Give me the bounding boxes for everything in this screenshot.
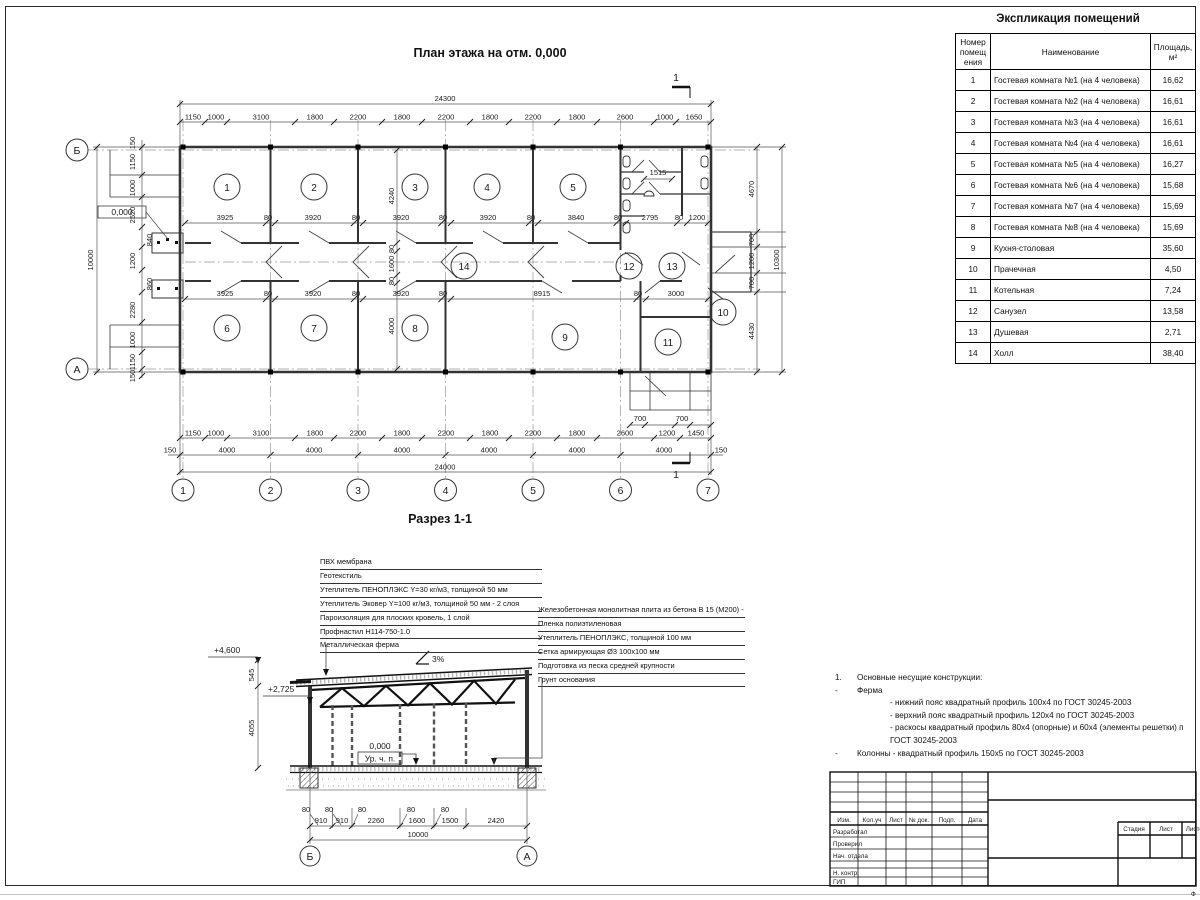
room-number: 5 [570, 183, 576, 194]
level-label: 0,000 [369, 741, 391, 751]
floor-layer-callouts: Железобетонная монолитная плита из бетон… [538, 604, 745, 687]
dim-label: 3920 [305, 213, 322, 222]
room-number: 13 [666, 262, 678, 273]
dim-label: 3920 [393, 289, 410, 298]
room-number: 9 [562, 333, 568, 344]
level-label: +4,600 [214, 645, 241, 655]
note-text: - нижний пояс квадратный профиль 100х4 п… [890, 697, 1131, 710]
dim-label: 80 [527, 213, 535, 222]
room-name: Гостевая комната №3 (на 4 человека) [991, 112, 1151, 133]
table-row: 14Холл38,40 [956, 343, 1196, 364]
dim-label: 4055 [247, 720, 256, 737]
table-row: 11Котельная7,24 [956, 280, 1196, 301]
table-row: 7Гостевая комната №7 (на 4 человека)15,6… [956, 196, 1196, 217]
grid-label: 1 [180, 485, 186, 497]
room-name: Гостевая комната №4 (на 4 человека) [991, 133, 1151, 154]
dim-label: 4430 [747, 323, 756, 340]
stamp-row-label: Проверил [833, 841, 862, 848]
dim-label: 1200 [689, 213, 706, 222]
callout-item: Профнастил Н114-750-1.0 [320, 626, 542, 640]
dim-label: 1000 [128, 180, 137, 197]
room-name: Прачечная [991, 259, 1151, 280]
room-bubbles [214, 174, 736, 355]
dim-label: 1600 [409, 816, 426, 825]
dim-label: 24300 [435, 94, 456, 103]
stamp-col-header: Лист [889, 817, 903, 824]
callout-item: Геотекстиль [320, 570, 542, 584]
grid-label: 4 [443, 485, 449, 497]
room-area: 35,60 [1151, 238, 1196, 259]
callout-item: Утеплитель Эковер Y=100 кг/м3, толщиной … [320, 598, 542, 612]
room-num: 3 [956, 112, 991, 133]
note-text: - верхний пояс квадратный профиль 120х4 … [890, 710, 1134, 723]
room-schedule: Номер помещ ения Наименование Площадь, м… [955, 33, 1196, 364]
room-num: 9 [956, 238, 991, 259]
dim-label: 840 [145, 234, 154, 247]
dim-label: 80 [441, 805, 449, 814]
dim-label: 8915 [534, 289, 551, 298]
dim-label: 1000 [208, 113, 225, 122]
level-label: +2,725 [268, 684, 295, 694]
dim-label: 4000 [387, 318, 396, 335]
dim-label: 700 [676, 414, 689, 423]
dim-label: 2600 [617, 113, 634, 122]
stamp-row-label: ГИП [833, 879, 846, 886]
room-name: Гостевая комната №2 (на 4 человека) [991, 91, 1151, 112]
dim-label: 4000 [219, 446, 236, 455]
table-row: 4Гостевая комната №4 (на 4 человека)16,6… [956, 133, 1196, 154]
dim-label: 700 [747, 277, 756, 290]
dim-label: 4000 [481, 446, 498, 455]
dim-label: 150 [164, 446, 177, 455]
room-name: Гостевая комната №7 (на 4 человека) [991, 196, 1151, 217]
room-area: 38,40 [1151, 343, 1196, 364]
dim-label: 700 [634, 414, 647, 423]
schedule-title: Экспликация помещений [940, 13, 1196, 25]
room-number: 6 [224, 324, 230, 335]
grid-label: А [73, 364, 80, 376]
callout-item: Железобетонная монолитная плита из бетон… [538, 604, 745, 618]
dim-label: 10300 [772, 250, 781, 271]
room-area: 15,68 [1151, 175, 1196, 196]
room-name: Душевая [991, 322, 1151, 343]
dim-label: 150 [128, 370, 137, 383]
room-schedule-table: Номер помещ ения Наименование Площадь, м… [955, 33, 1196, 364]
dim-label: 3000 [668, 289, 685, 298]
room-number: 14 [458, 262, 470, 273]
grid-label: 6 [618, 485, 624, 497]
dim-label: 80 [634, 289, 642, 298]
room-name: Гостевая комната №1 (на 4 человека) [991, 70, 1151, 91]
dim-label: 545 [247, 669, 256, 682]
stamp-col-header: Изм. [837, 817, 851, 824]
dim-label: 3925 [217, 289, 234, 298]
dim-label: 4000 [569, 446, 586, 455]
room-name: Кухня-столовая [991, 238, 1151, 259]
dim-label: 80 [614, 213, 622, 222]
dim-label: 2200 [438, 429, 455, 438]
roof-truss [310, 678, 525, 707]
dim-label: 80 [302, 805, 310, 814]
dim-label: 2200 [438, 113, 455, 122]
room-name: Санузел [991, 301, 1151, 322]
dim-label: 1800 [569, 429, 586, 438]
stamp-row-label: Н. контр. [833, 870, 859, 877]
col-header-number: Номер помещ ения [956, 34, 991, 70]
dim-label: 1800 [307, 113, 324, 122]
stamp-stage-header: Листов [1186, 826, 1200, 833]
dim-label: 80 [387, 245, 396, 253]
room-name: Гостевая комната №5 (на 4 человека) [991, 154, 1151, 175]
callout-item: Сетка армирующая Ø3 100х100 мм [538, 646, 745, 660]
dim-label: 80 [352, 289, 360, 298]
dim-label: 1000 [128, 332, 137, 349]
callout-item: Грунт основания [538, 674, 745, 688]
callout-item: Утеплитель ПЕНОПЛЭКС, толщиной 100 мм [538, 632, 745, 646]
note-marker: - [835, 748, 857, 761]
dim-label: 80 [439, 213, 447, 222]
dim-label: 1000 [657, 113, 674, 122]
dim-label: 1800 [482, 429, 499, 438]
dim-label: 1150 [128, 154, 137, 170]
construction-notes: 1.Основные несущие конструкции: -Ферма -… [835, 672, 1185, 760]
dim-label: 80 [358, 805, 366, 814]
room-name: Котельная [991, 280, 1151, 301]
room-number: 3 [412, 183, 418, 194]
dim-label: 700 [747, 234, 756, 247]
callout-item: Пленка полиэтиленовая [538, 618, 745, 632]
dim-label: 1200 [747, 253, 756, 270]
table-row: 10Прачечная4,50 [956, 259, 1196, 280]
dim-label: 2280 [128, 302, 137, 319]
room-num: 2 [956, 91, 991, 112]
title-block: Изм. Кол.уч Лист № док. Подп. Дата Разра… [825, 765, 1200, 900]
stamp-row-label: Нач. отдела [833, 853, 868, 860]
dim-label: 1650 [686, 113, 703, 122]
room-num: 7 [956, 196, 991, 217]
table-row: 5Гостевая комната №5 (на 4 человека)16,2… [956, 154, 1196, 175]
plan-title: План этажа на отм. 0,000 [340, 46, 640, 60]
dim-label: 3100 [253, 429, 270, 438]
dim-label: 1000 [208, 429, 225, 438]
dim-label: 4000 [394, 446, 411, 455]
callout-item: Металлическая ферма [320, 639, 542, 653]
room-num: 10 [956, 259, 991, 280]
stamp-row-label: Разработал [833, 828, 868, 836]
room-number: 2 [311, 183, 317, 194]
dim-label: 2520 [128, 207, 137, 224]
dim-label: 860 [145, 278, 154, 291]
room-number: 1 [224, 183, 230, 194]
stamp-col-header: № док. [909, 817, 929, 824]
dim-label: 1450 [688, 429, 705, 438]
table-row: 3Гостевая комната №3 (на 4 человека)16,6… [956, 112, 1196, 133]
stamp-col-header: Кол.уч [863, 817, 882, 824]
dim-label: 2420 [488, 816, 505, 825]
room-num: 11 [956, 280, 991, 301]
callout-item: Утеплитель ПЕНОПЛЭКС Y=30 кг/м3, толщино… [320, 584, 542, 598]
dim-label: 4000 [656, 446, 673, 455]
room-area: 16,62 [1151, 70, 1196, 91]
room-num: 5 [956, 154, 991, 175]
room-name: Холл [991, 343, 1151, 364]
floor-slab [286, 766, 546, 790]
dim-label: 3920 [480, 213, 497, 222]
room-area: 16,61 [1151, 91, 1196, 112]
dim-label: 80 [352, 213, 360, 222]
dim-label: 910 [336, 816, 349, 825]
grid-label: 3 [355, 485, 361, 497]
dim-label: 80 [325, 805, 333, 814]
note-text: - раскосы квадратный профиль 80х4 (опорн… [890, 722, 1184, 735]
dim-label: 2260 [368, 816, 385, 825]
dim-label: 3840 [568, 213, 585, 222]
dim-label: 1200 [128, 253, 137, 270]
room-area: 16,27 [1151, 154, 1196, 175]
dim-label: 2200 [525, 429, 542, 438]
dim-label: 10000 [86, 250, 95, 271]
walls [110, 147, 751, 410]
table-row: 2Гостевая комната №2 (на 4 человека)16,6… [956, 91, 1196, 112]
room-number: 7 [311, 324, 317, 335]
section-cut-label: 1 [673, 72, 679, 84]
entry-porches [152, 233, 183, 298]
room-number: 12 [623, 262, 635, 273]
grid-label: Б [307, 851, 314, 863]
dim-label: 1800 [482, 113, 499, 122]
dim-label: 24000 [435, 463, 456, 472]
col-header-name: Наименование [991, 34, 1151, 70]
room-area: 7,24 [1151, 280, 1196, 301]
dim-label: 2200 [350, 429, 367, 438]
grid-label: 2 [268, 485, 274, 497]
dim-label: 910 [315, 816, 328, 825]
dim-label: 1500 [442, 816, 459, 825]
dim-label: 80 [407, 805, 415, 814]
room-area: 15,69 [1151, 217, 1196, 238]
grid-label: 7 [705, 485, 711, 497]
dim-label: 1800 [394, 429, 411, 438]
dim-label: 3925 [217, 213, 234, 222]
dim-label: 1200 [659, 429, 676, 438]
col-header-area: Площадь, м² [1151, 34, 1196, 70]
room-num: 1 [956, 70, 991, 91]
stamp-col-header: Дата [968, 817, 982, 824]
callout-item: Пароизоляция для плоских кровель, 1 слой [320, 612, 542, 626]
table-row: 12Санузел13,58 [956, 301, 1196, 322]
dim-label: 1150 [128, 354, 137, 370]
note-marker: 1. [835, 672, 857, 685]
room-num: 8 [956, 217, 991, 238]
dim-label: 150 [128, 137, 137, 150]
section-cut-label: 1 [673, 469, 679, 481]
note-text: Колонны - квадратный профиль 150х5 по ГО… [857, 748, 1084, 761]
callout-item: ПВХ мембрана [320, 556, 542, 570]
room-number: 11 [663, 338, 674, 349]
dim-label: 80 [387, 277, 396, 285]
dim-label: 1150 [185, 113, 201, 122]
dim-label: 80 [439, 289, 447, 298]
dim-label: 1800 [307, 429, 324, 438]
note-text: Ферма [857, 685, 883, 698]
floor-caption: Ур. ч. п. [365, 754, 396, 764]
table-row: 1Гостевая комната №1 (на 4 человека)16,6… [956, 70, 1196, 91]
floor-plan: 0,000 1 1 [60, 60, 820, 520]
format-note: Ф [1191, 891, 1196, 898]
dim-label: 4240 [387, 188, 396, 205]
dim-label: 1800 [394, 113, 411, 122]
drawing-sheet: { "plan": { "title": "План этажа на отм.… [0, 0, 1200, 900]
stamp-stage-header: Стадия [1123, 826, 1144, 833]
section-grid-bubbles [300, 846, 537, 866]
room-number: 10 [717, 308, 729, 319]
table-row: 9Кухня-столовая35,60 [956, 238, 1196, 259]
room-num: 13 [956, 322, 991, 343]
dim-label: 80 [264, 213, 272, 222]
dim-label: 3920 [305, 289, 322, 298]
room-number: 4 [484, 183, 490, 194]
dim-label: 150 [715, 446, 728, 455]
room-number: 8 [412, 324, 418, 335]
room-area: 4,50 [1151, 259, 1196, 280]
room-area: 2,71 [1151, 322, 1196, 343]
room-area: 16,61 [1151, 112, 1196, 133]
dim-label: 1150 [185, 429, 201, 438]
dim-label: 1800 [569, 113, 586, 122]
stamp-stage-header: Лист [1159, 826, 1173, 833]
dim-label: 80 [264, 289, 272, 298]
door-leaves [221, 160, 735, 293]
note-marker: - [835, 685, 857, 698]
slope-label: 3% [432, 654, 445, 664]
dim-label: 10000 [408, 830, 429, 839]
room-name: Гостевая комната №8 (на 4 человека) [991, 217, 1151, 238]
grid-label: А [523, 851, 530, 863]
dim-label: 4670 [747, 181, 756, 198]
porch-dots [157, 238, 178, 290]
dim-label: 80 [675, 213, 683, 222]
room-num: 12 [956, 301, 991, 322]
stamp-col-header: Подп. [939, 817, 956, 824]
dim-label: 3100 [253, 113, 270, 122]
grid-label: Б [74, 145, 81, 157]
note-text: ГОСТ 30245-2003 [890, 735, 957, 748]
table-row: 6Гостевая комната №6 (на 4 человека)15,6… [956, 175, 1196, 196]
dim-label: 2200 [350, 113, 367, 122]
room-num: 6 [956, 175, 991, 196]
table-row: 8Гостевая комната №8 (на 4 человека)15,6… [956, 217, 1196, 238]
dim-label: 2200 [525, 113, 542, 122]
room-num: 4 [956, 133, 991, 154]
dim-label: 3920 [393, 213, 410, 222]
roof-layer-callouts: ПВХ мембрана Геотекстиль Утеплитель ПЕНО… [320, 556, 542, 653]
callout-item: Подготовка из песка средней крупности [538, 660, 745, 674]
room-name: Гостевая комната №6 (на 4 человека) [991, 175, 1151, 196]
table-row: 13Душевая2,71 [956, 322, 1196, 343]
grid-label: 5 [530, 485, 536, 497]
dim-label: 1515 [650, 168, 667, 177]
dim-label: 4000 [306, 446, 323, 455]
room-area: 15,69 [1151, 196, 1196, 217]
dim-label: 2795 [642, 213, 659, 222]
room-area: 16,61 [1151, 133, 1196, 154]
dim-label: 1600 [387, 256, 396, 273]
room-area: 13,58 [1151, 301, 1196, 322]
dim-label: 2600 [617, 429, 634, 438]
room-num: 14 [956, 343, 991, 364]
note-text: Основные несущие конструкции: [857, 672, 982, 685]
